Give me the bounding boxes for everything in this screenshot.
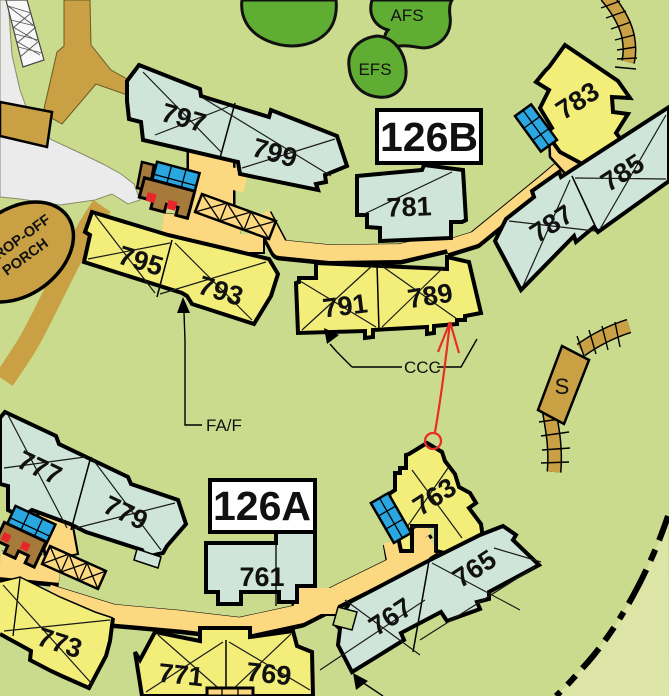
svg-text:FA/F: FA/F [206,416,242,435]
svg-text:791: 791 [321,288,369,323]
svg-text:126B: 126B [380,114,478,160]
svg-text:126A: 126A [213,483,311,529]
svg-text:S: S [555,374,570,399]
svg-text:781: 781 [386,191,432,223]
svg-text:761: 761 [239,562,284,592]
svg-text:AFS: AFS [390,6,423,25]
svg-text:EFS: EFS [358,60,391,79]
svg-text:771: 771 [157,658,205,693]
svg-text:CCC: CCC [404,358,441,377]
svg-text:769: 769 [245,657,293,692]
